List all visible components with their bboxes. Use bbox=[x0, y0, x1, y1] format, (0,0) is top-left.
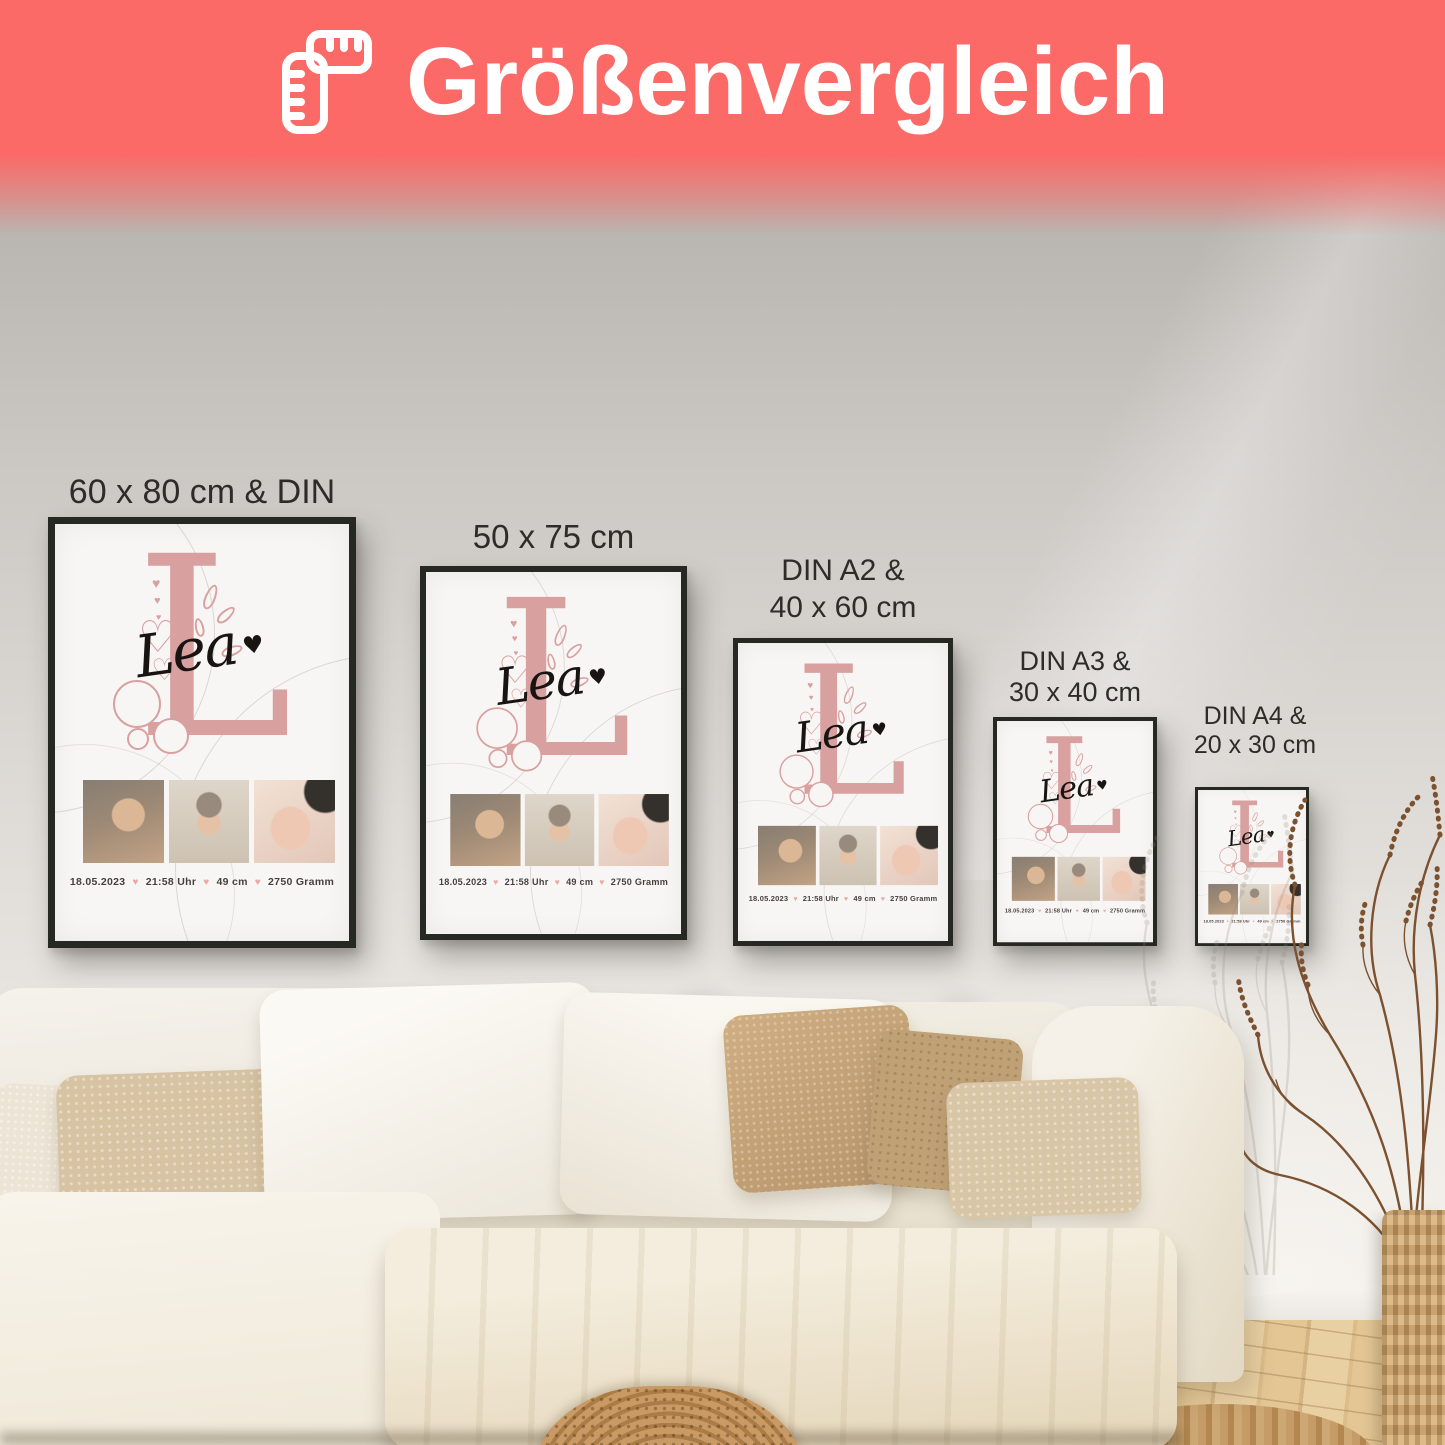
heart-icon: ♥ bbox=[793, 895, 797, 903]
poster-paper: L ♥ ♥ ♥ ♡ ♡ Lea♥ 18 bbox=[738, 643, 948, 941]
heart-icon: ♥ bbox=[807, 680, 813, 690]
heart-icon: ♥ bbox=[555, 878, 560, 888]
photo-baby-feet bbox=[254, 780, 335, 863]
birth-weight: 2750 Gramm bbox=[268, 876, 334, 888]
rose-decor bbox=[1049, 824, 1068, 843]
size-label-30x40: DIN A3 & 30 x 40 cm bbox=[993, 646, 1157, 708]
size-label-line: DIN A4 & bbox=[1177, 702, 1333, 731]
heart-icon: ♥ bbox=[809, 694, 814, 702]
poster-art: L ♥ ♥ ♥ ♡ ♡ Lea♥ 18 bbox=[426, 572, 681, 934]
heart-icon: ♥ bbox=[203, 877, 209, 888]
poster-paper: L ♥ ♥ ♥ ♡ ♡ Lea♥ 18 bbox=[55, 524, 349, 941]
photo-strip bbox=[758, 826, 938, 885]
poster-frame-40x60: L ♥ ♥ ♥ ♡ ♡ Lea♥ 18 bbox=[733, 638, 953, 946]
heart-icon: ♥ bbox=[493, 878, 498, 888]
birth-stats: 18.05.2023♥ 21:58 Uhr♥ 49 cm♥ 2750 Gramm bbox=[738, 894, 948, 903]
poster-frame-60x80: L ♥ ♥ ♥ ♡ ♡ Lea♥ 18 bbox=[48, 517, 356, 948]
heart-icon: ♥ bbox=[599, 878, 604, 888]
birth-time: 21:58 Uhr bbox=[505, 877, 549, 887]
photo-strip bbox=[450, 794, 669, 866]
photo-sleeping-baby bbox=[1012, 857, 1055, 901]
baby-name-text: Lea bbox=[492, 646, 587, 717]
page-title: Größenvergleich bbox=[406, 29, 1169, 135]
size-label-line: 40 x 60 cm bbox=[733, 589, 953, 626]
size-label-line: DIN A3 & bbox=[993, 646, 1157, 677]
pillow-white bbox=[259, 982, 601, 1223]
baby-name-text: Lea bbox=[792, 704, 871, 762]
heart-icon: ♥ bbox=[241, 630, 266, 661]
heart-icon: ♥ bbox=[1050, 759, 1053, 765]
birth-weight: 2750 Gramm bbox=[890, 894, 937, 903]
rose-decor bbox=[808, 782, 834, 808]
rose-decor bbox=[488, 749, 507, 768]
photo-strip bbox=[83, 780, 335, 863]
poster-frame-50x75: L ♥ ♥ ♥ ♡ ♡ Lea♥ 18 bbox=[420, 566, 687, 940]
poster-art: L ♥ ♥ ♥ ♡ ♡ Lea♥ 18 bbox=[738, 643, 948, 941]
heart-icon: ♥ bbox=[881, 895, 885, 903]
sofa-seat-cushion bbox=[0, 1192, 440, 1445]
birth-time: 21:58 Uhr bbox=[803, 894, 839, 903]
photo-baby-with-hat bbox=[525, 794, 595, 866]
heart-icon: ♥ bbox=[871, 719, 889, 741]
heart-icon: ♥ bbox=[1038, 908, 1041, 914]
birth-length: 49 cm bbox=[853, 894, 875, 903]
heart-icon: ♥ bbox=[132, 877, 138, 888]
birth-length: 49 cm bbox=[217, 876, 248, 888]
sofa-seat-cushion bbox=[385, 1228, 1177, 1445]
ruler-icon bbox=[276, 26, 376, 138]
birth-time: 21:58 Uhr bbox=[146, 876, 197, 888]
birth-date: 18.05.2023 bbox=[70, 876, 126, 888]
size-label-line: 50 x 75 cm bbox=[420, 518, 687, 556]
heart-icon: ♥ bbox=[512, 634, 518, 644]
rose-decor bbox=[1035, 829, 1047, 841]
heart-icon: ♥ bbox=[587, 664, 609, 691]
photo-baby-with-hat bbox=[169, 780, 250, 863]
plant-branches bbox=[1220, 775, 1440, 1275]
size-label-line: DIN A2 & bbox=[733, 552, 953, 589]
pillow-knit bbox=[946, 1077, 1143, 1220]
birth-stats: 18.05.2023♥ 21:58 Uhr♥ 49 cm♥ 2750 Gramm bbox=[426, 877, 681, 887]
birth-stats: 18.05.2023♥ 21:58 Uhr♥ 49 cm♥ 2750 Gramm bbox=[55, 876, 349, 888]
rose-decor bbox=[153, 718, 189, 754]
rose-decor bbox=[789, 789, 805, 805]
rose-decor bbox=[127, 728, 149, 750]
birth-time: 21:58 Uhr bbox=[1045, 908, 1072, 914]
heart-icon: ♥ bbox=[1048, 749, 1052, 756]
heart-icon: ♥ bbox=[510, 617, 517, 629]
photo-baby-feet bbox=[880, 826, 938, 885]
rose-decor bbox=[511, 740, 542, 771]
birth-length: 49 cm bbox=[566, 877, 593, 887]
photo-sleeping-baby bbox=[758, 826, 816, 885]
poster-art: L ♥ ♥ ♥ ♡ ♡ Lea♥ 18 bbox=[55, 524, 349, 941]
size-label-40x60: DIN A2 & 40 x 60 cm bbox=[733, 552, 953, 626]
photo-sleeping-baby bbox=[83, 780, 164, 863]
poster-paper: L ♥ ♥ ♥ ♡ ♡ Lea♥ 18 bbox=[426, 572, 681, 934]
size-comparison-scene: Größenvergleich 60 x 80 cm & DIN A1 50 x… bbox=[0, 0, 1445, 1445]
header-content: Größenvergleich bbox=[0, 26, 1445, 138]
header-banner: Größenvergleich bbox=[0, 0, 1445, 235]
heart-icon: ♥ bbox=[844, 895, 848, 903]
birth-weight: 2750 Gramm bbox=[611, 877, 668, 887]
size-label-line: 30 x 40 cm bbox=[993, 677, 1157, 708]
heart-icon: ♥ bbox=[1076, 908, 1079, 914]
birth-date: 18.05.2023 bbox=[1005, 908, 1034, 914]
heart-icon: ♥ bbox=[154, 596, 161, 607]
birth-date: 18.05.2023 bbox=[439, 877, 487, 887]
heart-icon: ♥ bbox=[255, 877, 261, 888]
heart-icon: ♥ bbox=[152, 576, 160, 590]
photo-sleeping-baby bbox=[450, 794, 520, 866]
photo-baby-feet bbox=[599, 794, 669, 866]
birth-date: 18.05.2023 bbox=[749, 894, 789, 903]
size-label-50x75: 50 x 75 cm bbox=[420, 518, 687, 556]
wicker-basket bbox=[1382, 1210, 1445, 1445]
photo-baby-with-hat bbox=[819, 826, 877, 885]
baby-name-text: Lea bbox=[131, 610, 241, 691]
